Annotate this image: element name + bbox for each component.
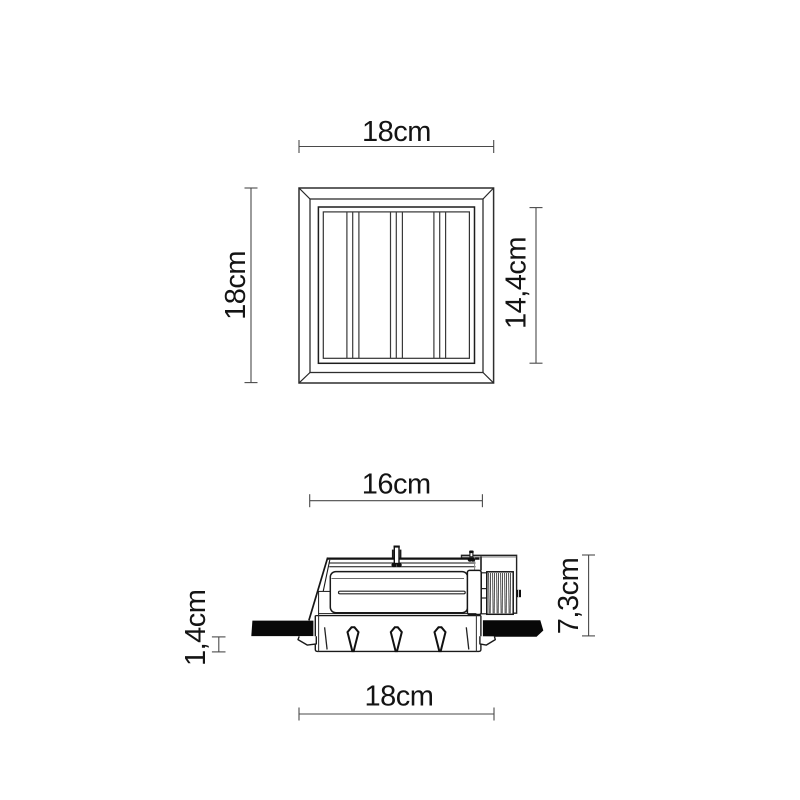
- svg-text:16cm: 16cm: [362, 468, 431, 500]
- svg-text:14,4cm: 14,4cm: [501, 237, 533, 329]
- svg-text:1,4cm: 1,4cm: [180, 590, 212, 666]
- svg-text:18cm: 18cm: [220, 251, 252, 320]
- svg-text:18cm: 18cm: [365, 681, 434, 713]
- svg-text:18cm: 18cm: [362, 116, 431, 148]
- svg-text:7,3cm: 7,3cm: [553, 558, 585, 634]
